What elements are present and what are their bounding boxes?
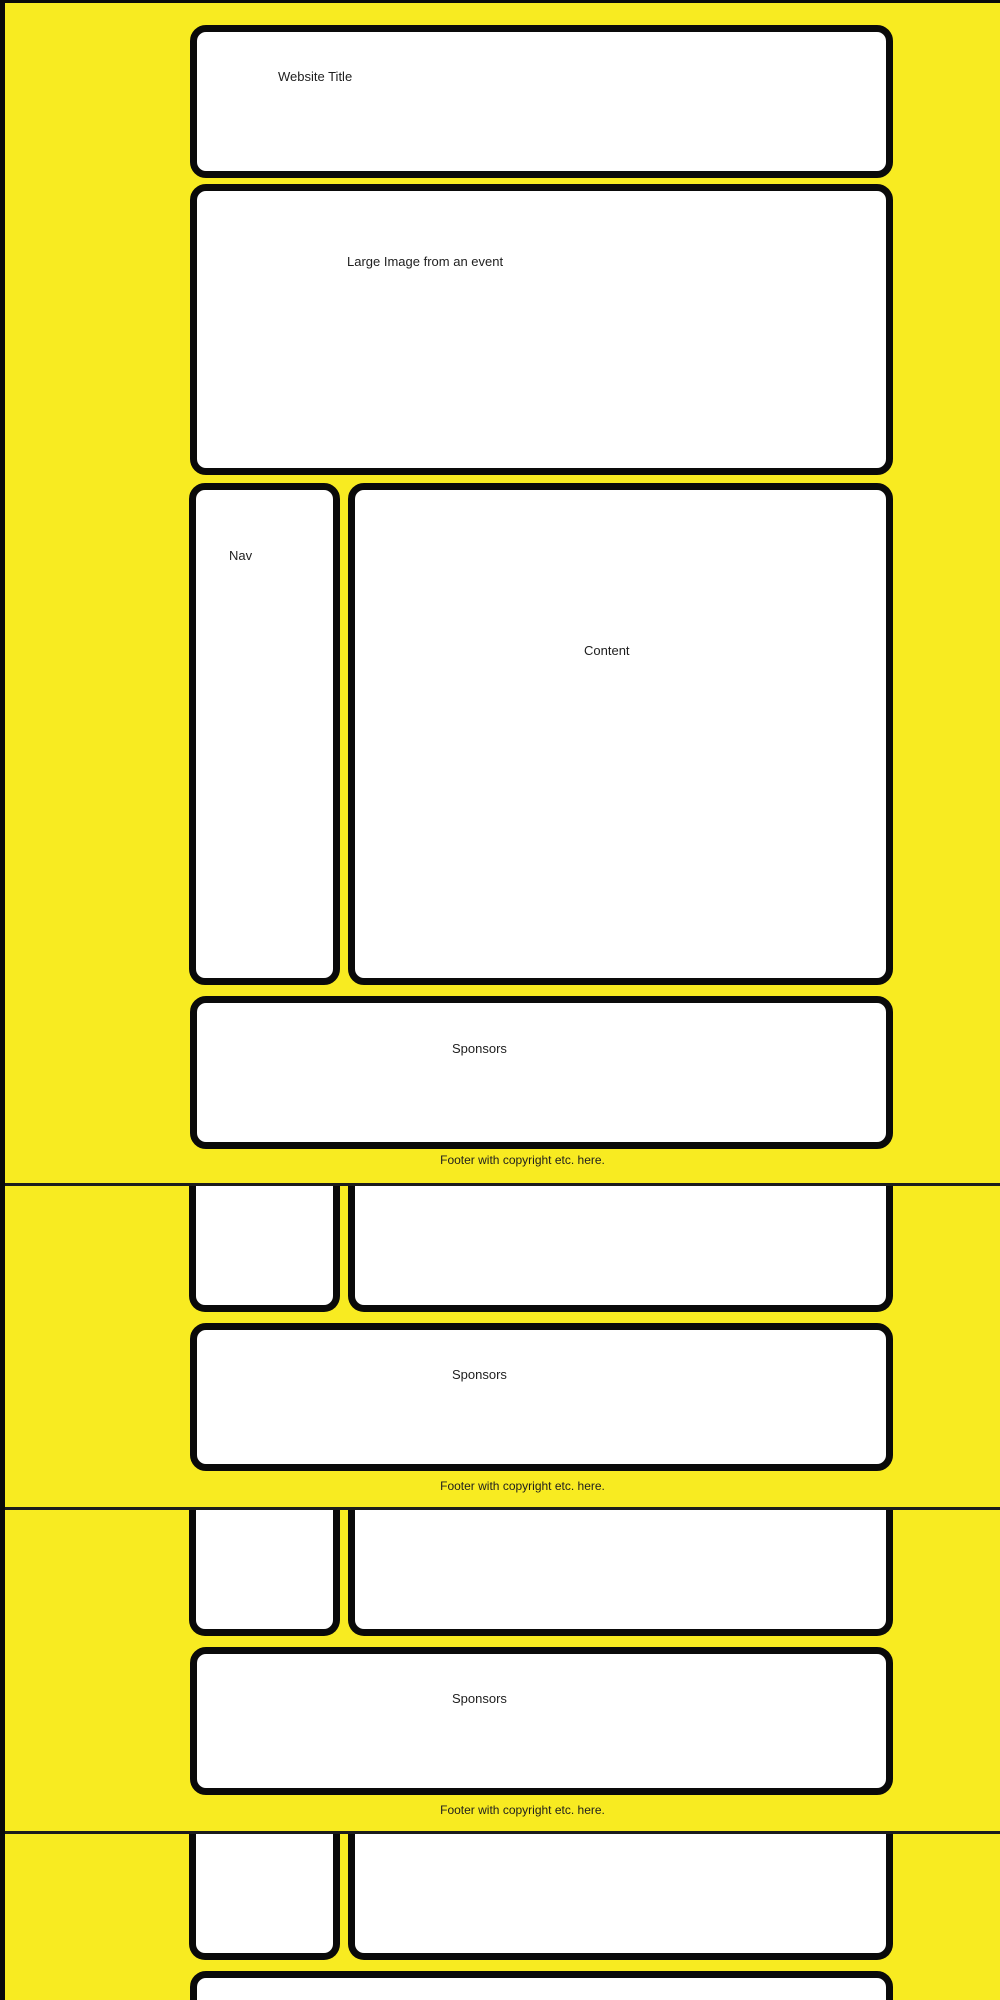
content-box-partial	[348, 1834, 893, 1960]
sponsors-label: Sponsors	[452, 1692, 507, 1706]
wireframe-page: Website Title Large Image from an event …	[0, 0, 1000, 2000]
content-box-partial	[348, 1510, 893, 1636]
footer-text: Footer with copyright etc. here.	[190, 1480, 855, 1493]
website-title-box	[190, 25, 893, 178]
page-left-edge	[0, 0, 5, 2000]
nav-box-partial	[189, 1510, 340, 1636]
content-box	[348, 483, 893, 985]
nav-box-partial	[189, 1834, 340, 1960]
footer-text: Footer with copyright etc. here.	[190, 1154, 855, 1167]
nav-label: Nav	[229, 549, 252, 563]
tile-divider-line	[0, 1831, 1000, 1834]
hero-image-box	[190, 184, 893, 475]
website-title-label: Website Title	[278, 70, 352, 84]
page-top-edge	[0, 0, 1000, 3]
sponsors-box	[190, 1323, 893, 1471]
content-label: Content	[584, 644, 630, 658]
sponsors-label: Sponsors	[452, 1368, 507, 1382]
sponsors-box	[190, 1647, 893, 1795]
sponsors-label: Sponsors	[452, 1042, 507, 1056]
hero-image-label: Large Image from an event	[347, 255, 503, 269]
sponsors-box	[190, 996, 893, 1149]
nav-box-partial	[189, 1186, 340, 1312]
tile-divider-line	[0, 1183, 1000, 1186]
content-box-partial	[348, 1186, 893, 1312]
nav-box	[189, 483, 340, 985]
sponsors-box	[190, 1971, 893, 2000]
tile-divider-line	[0, 1507, 1000, 1510]
footer-text: Footer with copyright etc. here.	[190, 1804, 855, 1817]
